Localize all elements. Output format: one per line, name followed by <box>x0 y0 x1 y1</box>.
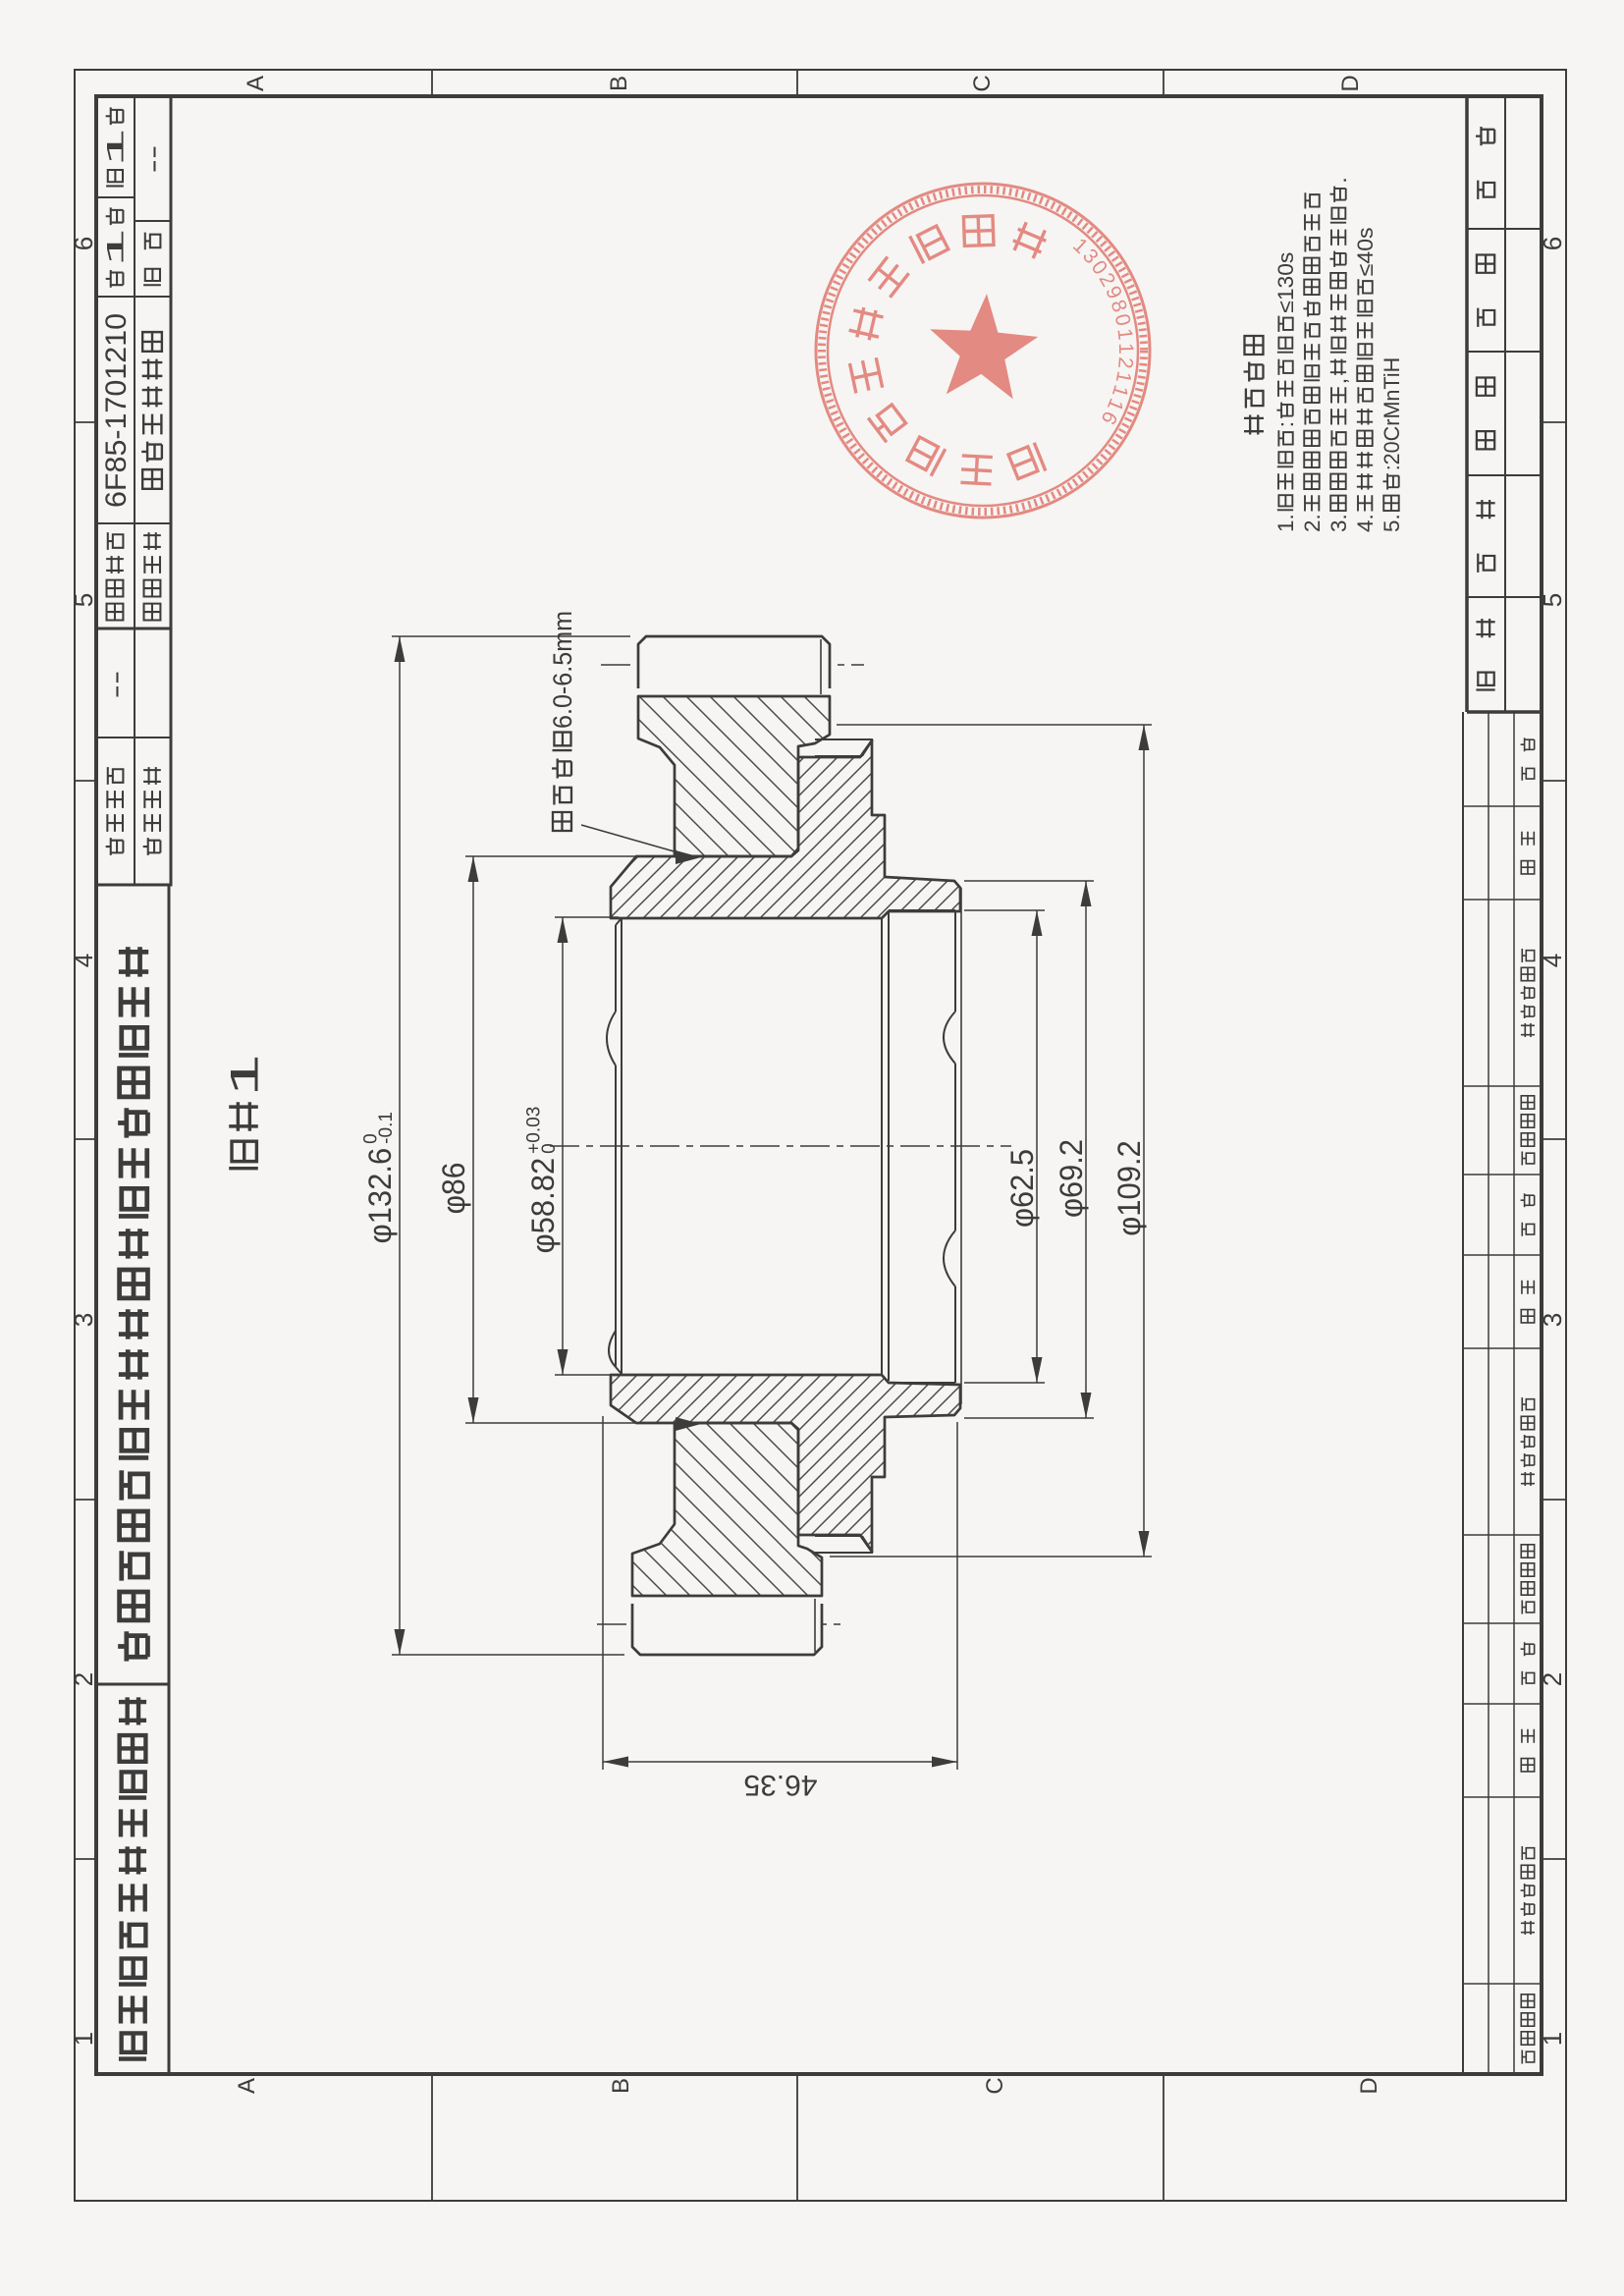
svg-text:6: 6 <box>1538 237 1567 250</box>
svg-text:0: 0 <box>539 1143 560 1154</box>
svg-text:-0.1: -0.1 <box>376 1112 397 1144</box>
svg-text:--: -- <box>137 145 167 174</box>
svg-text:--: -- <box>100 671 130 699</box>
svg-text:5: 5 <box>69 593 98 607</box>
svg-text:1: 1 <box>103 128 130 167</box>
svg-text:≤130s: ≤130s <box>1273 252 1298 313</box>
svg-text::: : <box>1273 421 1298 428</box>
svg-text:φ69.2: φ69.2 <box>1054 1139 1089 1218</box>
svg-text:3: 3 <box>1538 1313 1567 1327</box>
svg-text:A: A <box>243 76 269 91</box>
svg-text:A: A <box>234 2078 260 2094</box>
svg-text:4: 4 <box>69 954 98 967</box>
svg-text:φ62.5: φ62.5 <box>1004 1149 1040 1228</box>
svg-text:φ109.2: φ109.2 <box>1111 1140 1147 1236</box>
svg-text:5.: 5. <box>1380 514 1404 532</box>
svg-text:3.: 3. <box>1326 514 1351 532</box>
svg-text:φ86: φ86 <box>436 1163 471 1215</box>
svg-text:D: D <box>1356 2077 1382 2094</box>
svg-text:6.0-6.5mm: 6.0-6.5mm <box>548 611 577 729</box>
svg-text:C: C <box>969 75 996 91</box>
svg-text:.: . <box>1326 177 1351 184</box>
svg-text:D: D <box>1337 75 1364 91</box>
svg-text:1: 1 <box>1114 343 1137 355</box>
svg-text:1.: 1. <box>1273 514 1298 532</box>
svg-text:46.35: 46.35 <box>743 1769 817 1801</box>
svg-text:B: B <box>608 2078 634 2094</box>
svg-text:,: , <box>1326 378 1351 385</box>
svg-text:1: 1 <box>223 1054 266 1097</box>
svg-text:≤40s: ≤40s <box>1353 227 1378 276</box>
svg-text:1: 1 <box>1538 2032 1567 2046</box>
svg-text:1: 1 <box>69 2032 98 2046</box>
svg-text::20CrMnTiH: :20CrMnTiH <box>1380 357 1404 471</box>
svg-text:4.: 4. <box>1353 514 1378 532</box>
svg-text:3: 3 <box>69 1313 98 1327</box>
svg-text:6: 6 <box>69 237 98 250</box>
svg-text:4: 4 <box>1538 954 1567 967</box>
svg-text:B: B <box>606 76 632 91</box>
svg-text:5: 5 <box>1538 593 1567 607</box>
svg-text:φ58.82: φ58.82 <box>525 1158 561 1254</box>
svg-text:C: C <box>982 2077 1008 2094</box>
svg-text:2: 2 <box>69 1672 98 1686</box>
svg-text:2: 2 <box>1113 356 1137 370</box>
svg-text:6F85-1701210: 6F85-1701210 <box>100 313 133 508</box>
svg-text:2: 2 <box>1538 1672 1567 1686</box>
svg-text:1: 1 <box>103 228 130 267</box>
svg-text:2.: 2. <box>1300 514 1325 532</box>
svg-text:φ132.6: φ132.6 <box>362 1148 398 1244</box>
